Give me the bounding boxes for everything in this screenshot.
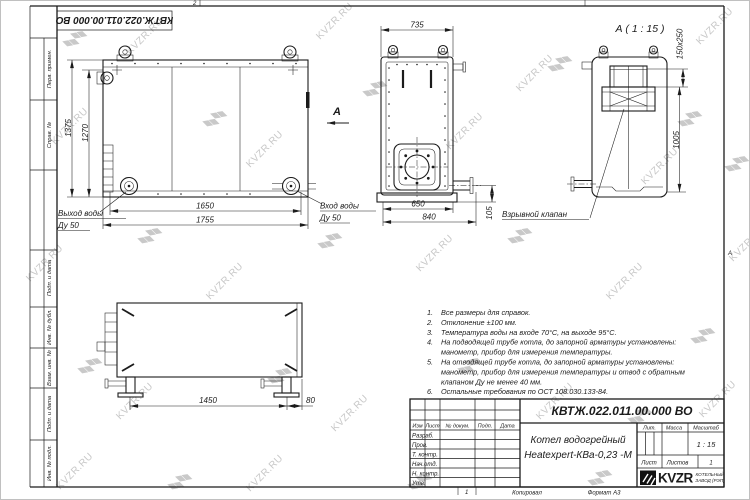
note-line: Температура воды на входе 70°С, на выход… <box>441 328 617 337</box>
tb-row-utv: Утв. <box>411 481 426 487</box>
front-dim-1755: 1755 <box>196 216 214 225</box>
tb-lit-label: Лит. <box>642 426 656 432</box>
tb-mass-label: Масса <box>666 426 682 432</box>
note-number: 1. <box>427 308 433 317</box>
tb-sheets-value: 1 <box>709 461 712 467</box>
explosion-valve-label: Взрывной клапан <box>502 210 568 219</box>
tb-doc-number: КВТЖ.022.011.00.000 ВО <box>552 404 694 418</box>
note-line: клапаном Ду не менее 40 мм. <box>441 377 542 386</box>
tb-scale-value: 1 : 15 <box>697 440 717 449</box>
outlet-label: Выход воды <box>58 209 103 218</box>
detail-dim-1005: 1005 <box>672 131 681 149</box>
tb-row-nkontr: Н. контр. <box>412 472 439 478</box>
tb-sheet-label: Лист <box>640 461 656 467</box>
top-stamp-doc-number: КВТЖ.022.011.00.000 ВО <box>56 14 174 25</box>
margin-label-inv-dubl: Инв. № дубл. <box>47 309 53 345</box>
tb-col-izm: Изм <box>412 424 422 430</box>
margin-label-podp-data-1: Подп. и дата <box>47 259 53 296</box>
tb-sheets-label: Листов <box>666 461 689 467</box>
tb-row-razrab: Разраб. <box>412 434 434 440</box>
front-dim-1270: 1270 <box>81 124 90 142</box>
tb-scale-label: Масштаб <box>693 426 720 432</box>
front-dim-1375: 1375 <box>64 119 73 137</box>
drawing-sheet: KVZR.RUKVZR.RUKVZR.RUKVZR.RUKVZR.RUKVZR.… <box>0 0 750 500</box>
bottom-dim-1450: 1450 <box>199 396 217 405</box>
view-arrow-label: А <box>332 106 341 118</box>
margin-label-perv-primen: Перв. примен. <box>47 50 53 89</box>
tb-col-data: Дата <box>499 424 515 430</box>
note-line: На отводящей трубе котла, до запорной ар… <box>441 358 674 367</box>
zone-mark-top: 2 <box>192 1 197 7</box>
tb-row-tkontr: Т. контр. <box>412 453 438 459</box>
note-line: Отклонение ±100 мм. <box>441 318 517 327</box>
tb-col-podp: Подп. <box>478 424 493 430</box>
top-dim-735: 735 <box>410 21 424 30</box>
detail-dim-valve: 150x250 <box>676 28 685 59</box>
tb-row-nachotd: Нач.отд. <box>412 462 437 468</box>
note-line: манометр, прибор для измерения температу… <box>441 348 613 357</box>
zone-mark-bottom: 1 <box>465 490 468 496</box>
company-line-2: ЗАВОД (РЭП) <box>695 478 725 483</box>
note-number: 5. <box>427 358 433 367</box>
margin-label-sprav-no: Справ. № <box>47 122 53 148</box>
note-line: манометр, прибор для измерения температу… <box>441 367 685 376</box>
tb-col-dokum: № докум. <box>445 424 469 430</box>
top-dim-840: 840 <box>422 213 436 222</box>
inlet-size-label: Ду 50 <box>319 214 341 223</box>
note-number: 4. <box>427 338 433 347</box>
detail-view-title: А ( 1 : 15 ) <box>614 23 664 35</box>
note-line: На подводящей трубе котла, до запорной а… <box>441 338 676 347</box>
tb-col-list: Лист <box>424 424 440 430</box>
note-line: Остальные требования по ОСТ 108.030.133-… <box>441 387 608 396</box>
margin-label-inv-podl: Инв. № подл. <box>47 445 53 481</box>
drawing-canvas: KVZR.RUKVZR.RUKVZR.RUKVZR.RUKVZR.RUKVZR.… <box>0 0 750 500</box>
kvzr-logo-text: KVZR <box>658 471 694 486</box>
note-number: 3. <box>427 328 433 337</box>
outlet-size-label: Ду 50 <box>57 221 79 230</box>
zone-mark-right: А <box>727 251 732 257</box>
note-line: Все размеры для справок. <box>441 308 530 317</box>
margin-label-vzam-inv: Взам. инв. № <box>47 350 53 386</box>
format-label: Формат А3 <box>588 491 621 497</box>
copied-label: Копировал <box>512 491 542 497</box>
inlet-label: Вход воды <box>320 202 359 211</box>
margin-label-podp-data-2: Подп. и дата <box>47 395 53 432</box>
note-number: 2. <box>426 318 433 327</box>
bottom-dim-80: 80 <box>306 396 315 405</box>
note-number: 6. <box>427 387 433 396</box>
tb-product-name-2: Heatexpert-КВа-0,23 -М <box>524 450 632 461</box>
front-dim-1650: 1650 <box>196 202 214 211</box>
tb-product-name-1: Котел водогрейный <box>530 435 626 446</box>
company-line-1: КОТЕЛЬНЫЙ <box>696 470 726 477</box>
tb-row-prov: Пров. <box>412 443 428 449</box>
top-dim-105: 105 <box>485 206 494 220</box>
top-dim-650: 650 <box>411 200 425 209</box>
